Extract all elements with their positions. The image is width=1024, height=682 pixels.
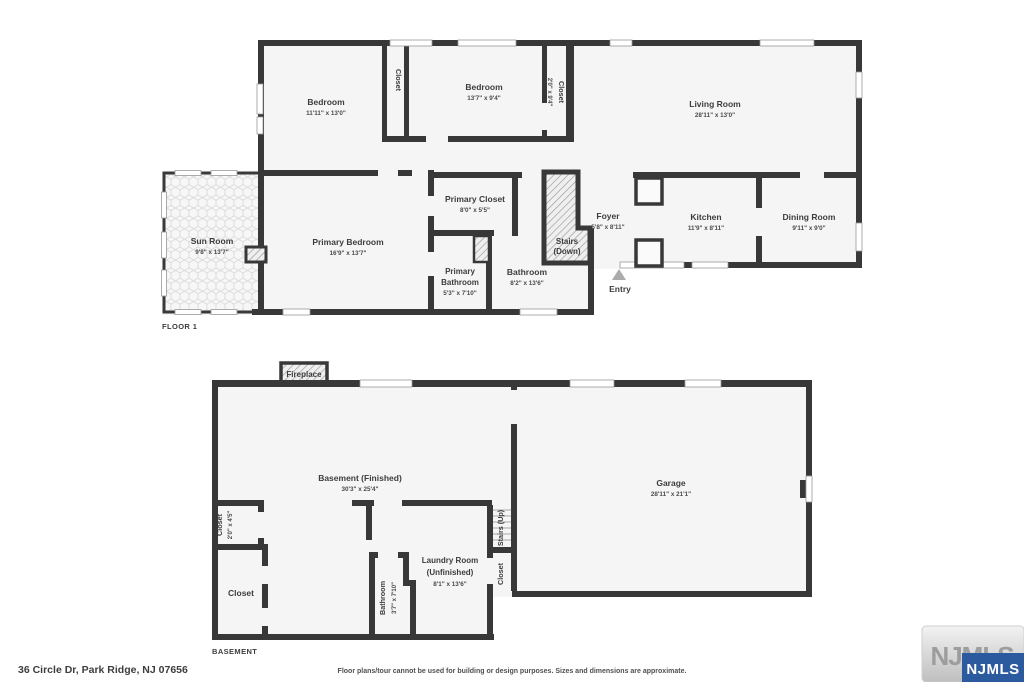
floorplan-image: Bedroom 11'11" x 13'0" Closet Bedroom 13… [0,0,1024,682]
room-dims-basement-bathroom: 3'7" x 7'10" [392,582,398,614]
room-label-stairs-up: Stairs (Up) [496,509,505,546]
basement-title: BASEMENT [212,647,257,656]
room-dims-primary-bedroom: 16'9" x 13'7" [330,250,367,257]
entry-arrow-icon [612,269,626,280]
room-label-basement-bathroom: Bathroom [378,581,387,615]
room-dims-kitchen: 11'9" x 8'11" [688,225,724,232]
room-dims-laundry: 8'1" x 13'6" [433,581,466,588]
room-label-closet-left: Closet [394,69,403,92]
floor1-plan: Bedroom 11'11" x 13'0" Closet Bedroom 13… [162,40,863,331]
room-dims-basement-finished: 30'3" x 25'4" [342,486,379,493]
room-dims-closet-mid: 2'0" x 9'4" [546,78,552,107]
room-label-basement-finished: Basement (Finished) [318,473,402,483]
floorplan-page: Bedroom 11'11" x 13'0" Closet Bedroom 13… [0,0,1024,682]
floor1-title: FLOOR 1 [162,322,197,331]
room-label-primary-closet: Primary Closet [445,194,505,204]
room-label-primary-bathroom-1: Primary [445,267,475,276]
room-label-closet-right: Closet [496,562,505,585]
room-label-dining-room: Dining Room [783,212,836,222]
njmls-logo: NJMLS NJMLS [922,626,1024,682]
room-label-kitchen: Kitchen [690,212,721,222]
sunroom-fireplace-box [246,247,266,262]
room-label-stairs-down-2: (Down) [553,247,580,256]
room-label-closet-bottom-left: Closet [228,588,254,598]
room-label-laundry-2: (Unfinished) [427,568,474,577]
room-label-primary-bedroom: Primary Bedroom [312,237,384,247]
room-label-garage: Garage [656,478,686,488]
room-label-closet-top-left: Closet [215,513,224,536]
room-label-living-room: Living Room [689,99,741,109]
room-label-sun-room: Sun Room [191,236,234,246]
linen-closet-box [474,236,489,262]
room-label-bedroom-mid: Bedroom [465,82,503,92]
room-label-stairs-down-1: Stairs [556,237,579,246]
disclaimer-text: Floor plans/tour cannot be used for buil… [338,668,687,675]
room-dims-living-room: 28'11" x 13'0" [695,112,735,119]
njmls-badge-text: NJMLS [966,661,1019,678]
room-label-bathroom: Bathroom [507,267,548,277]
basement-plan: Fireplace Basement (Finished) 30'3" x 25… [212,363,812,656]
room-dims-closet-top-left: 2'0" x 4'5" [228,511,234,540]
room-dims-sun-room: 9'8" x 13'7" [195,249,228,256]
room-dims-primary-closet: 8'0" x 5'5" [460,207,490,214]
room-dims-bedroom-left: 11'11" x 13'0" [306,110,346,117]
room-dims-garage: 28'11" x 21'1" [651,491,691,498]
room-dims-dining-room: 9'11" x 9'0" [792,225,825,232]
room-dims-bathroom: 8'2" x 13'6" [510,280,543,287]
room-dims-primary-bathroom: 5'3" x 7'10" [443,290,476,297]
property-address: 36 Circle Dr, Park Ridge, NJ 07656 [18,664,188,676]
room-label-primary-bathroom-2: Bathroom [441,278,479,287]
room-dims-bedroom-mid: 13'7" x 9'4" [467,95,500,102]
room-label-laundry-1: Laundry Room [422,556,478,565]
room-label-closet-mid: Closet [557,81,566,104]
room-label-foyer: Foyer [596,211,620,221]
entry-label: Entry [609,284,631,294]
fireplace-label: Fireplace [286,370,322,379]
room-label-bedroom-left: Bedroom [307,97,345,107]
room-dims-foyer: 5'8" x 8'11" [591,224,624,231]
